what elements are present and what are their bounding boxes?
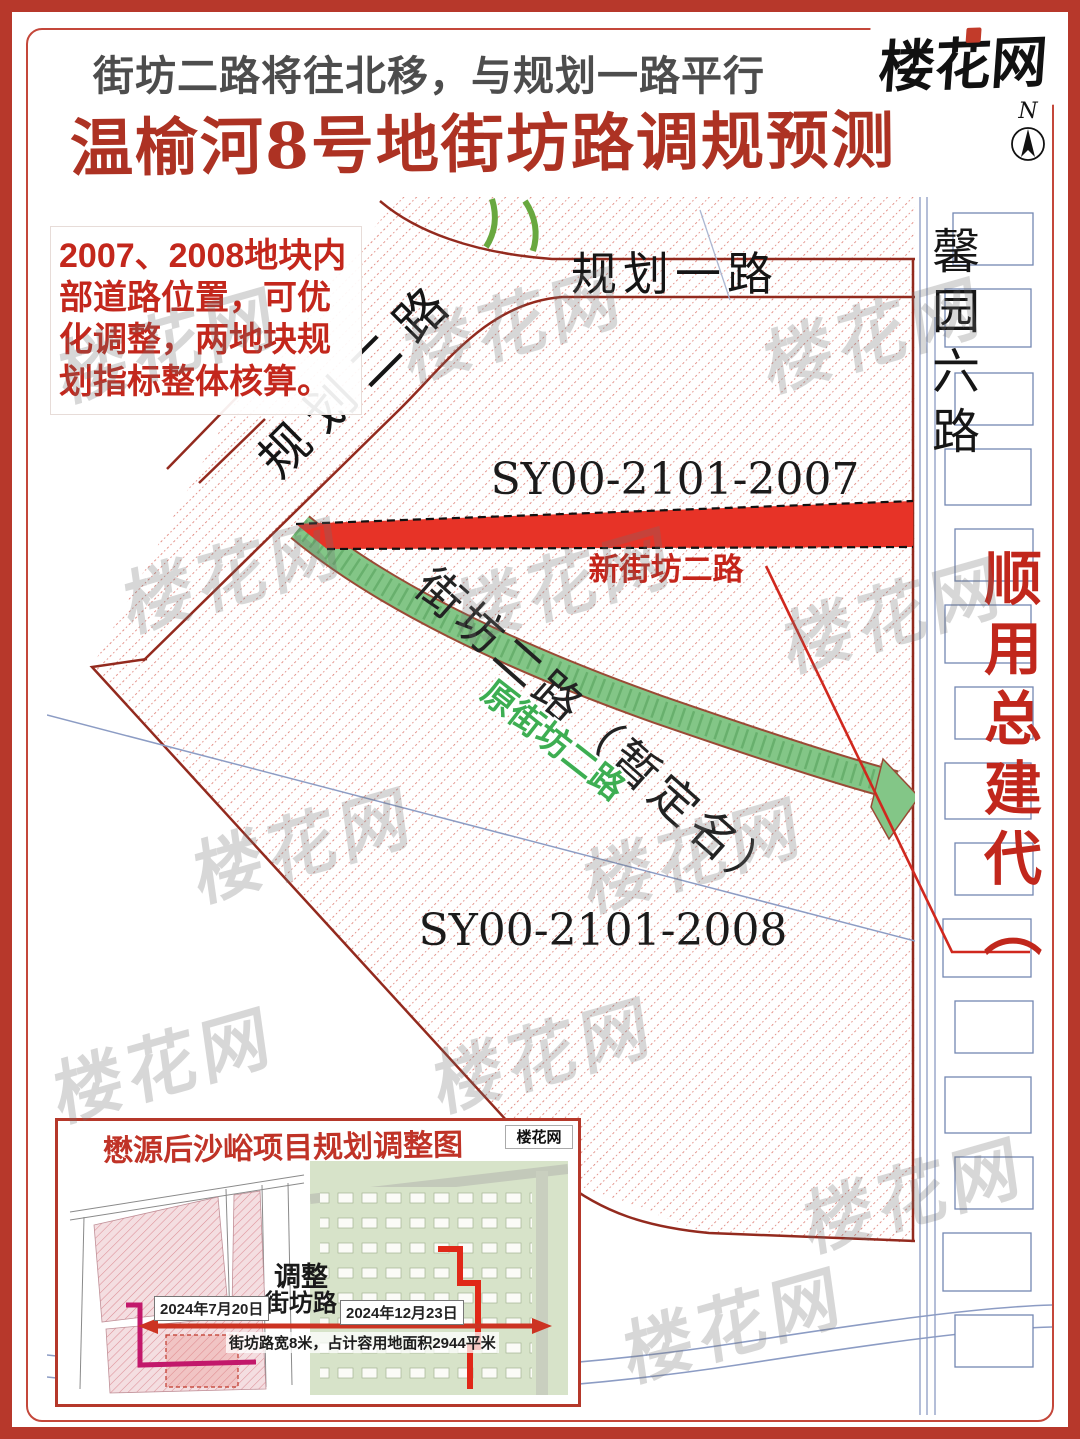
logo-seal-icon <box>966 27 982 43</box>
inset-adjust-line1: 调整 <box>261 1263 341 1291</box>
inset-caption: 街坊路宽8米，占计容用地面积2944平米 <box>226 1332 499 1353</box>
inset-right-map <box>310 1161 568 1400</box>
label-planned-road-1: 规划一路 <box>571 247 779 301</box>
inset-logo: 楼花网 <box>505 1125 573 1149</box>
label-xinyuan-road-6: 馨园六路 <box>916 226 986 466</box>
site-logo: 楼花网 <box>865 19 1062 112</box>
label-parcel-2008: SY00-2101-2008 <box>419 905 788 956</box>
site-logo-text: 楼花网 <box>876 29 1049 101</box>
note-box: 2007、2008地块内部道路位置，可优化调整，两地块规划指标整体核算。 <box>50 226 362 415</box>
label-parcel-2007: SY00-2101-2007 <box>491 454 860 505</box>
inset-right-buildings <box>320 1187 532 1383</box>
label-right-red-text: 顺用总建代（ <box>966 548 1050 968</box>
compass-n-label: N <box>1017 100 1038 124</box>
planning-infographic-page: 规划一路 规划二路 SY00-2101-2007 SY00-2101-2008 … <box>0 0 1080 1439</box>
compass-icon: N <box>1008 100 1048 173</box>
inset-adjust-line2: 街坊路 <box>261 1291 341 1316</box>
label-new-road: 新街坊二路 <box>589 552 745 587</box>
inset-adjust-label: 调整 街坊路 <box>261 1263 341 1317</box>
inset-date-right: 2024年12月23日 <box>340 1300 464 1325</box>
inset-comparison-figure: 懋源后沙峪项目规划调整图 楼花网 <box>55 1118 581 1407</box>
page-title: 温榆河8号地街坊路调规预测 <box>70 90 897 190</box>
inset-date-left: 2024年7月20日 <box>154 1296 269 1321</box>
